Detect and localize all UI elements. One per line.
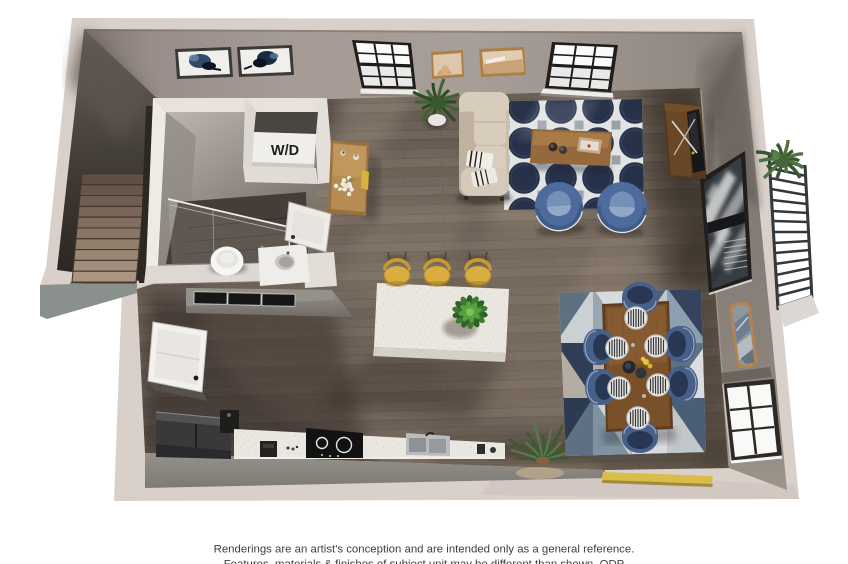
svg-text:Features, materials & finishes: Features, materials & finishes of subjec… [224,559,625,564]
svg-text:Renderings are an artist's con: Renderings are an artist's conception an… [214,544,635,556]
svg-text:W/D: W/D [271,143,299,159]
